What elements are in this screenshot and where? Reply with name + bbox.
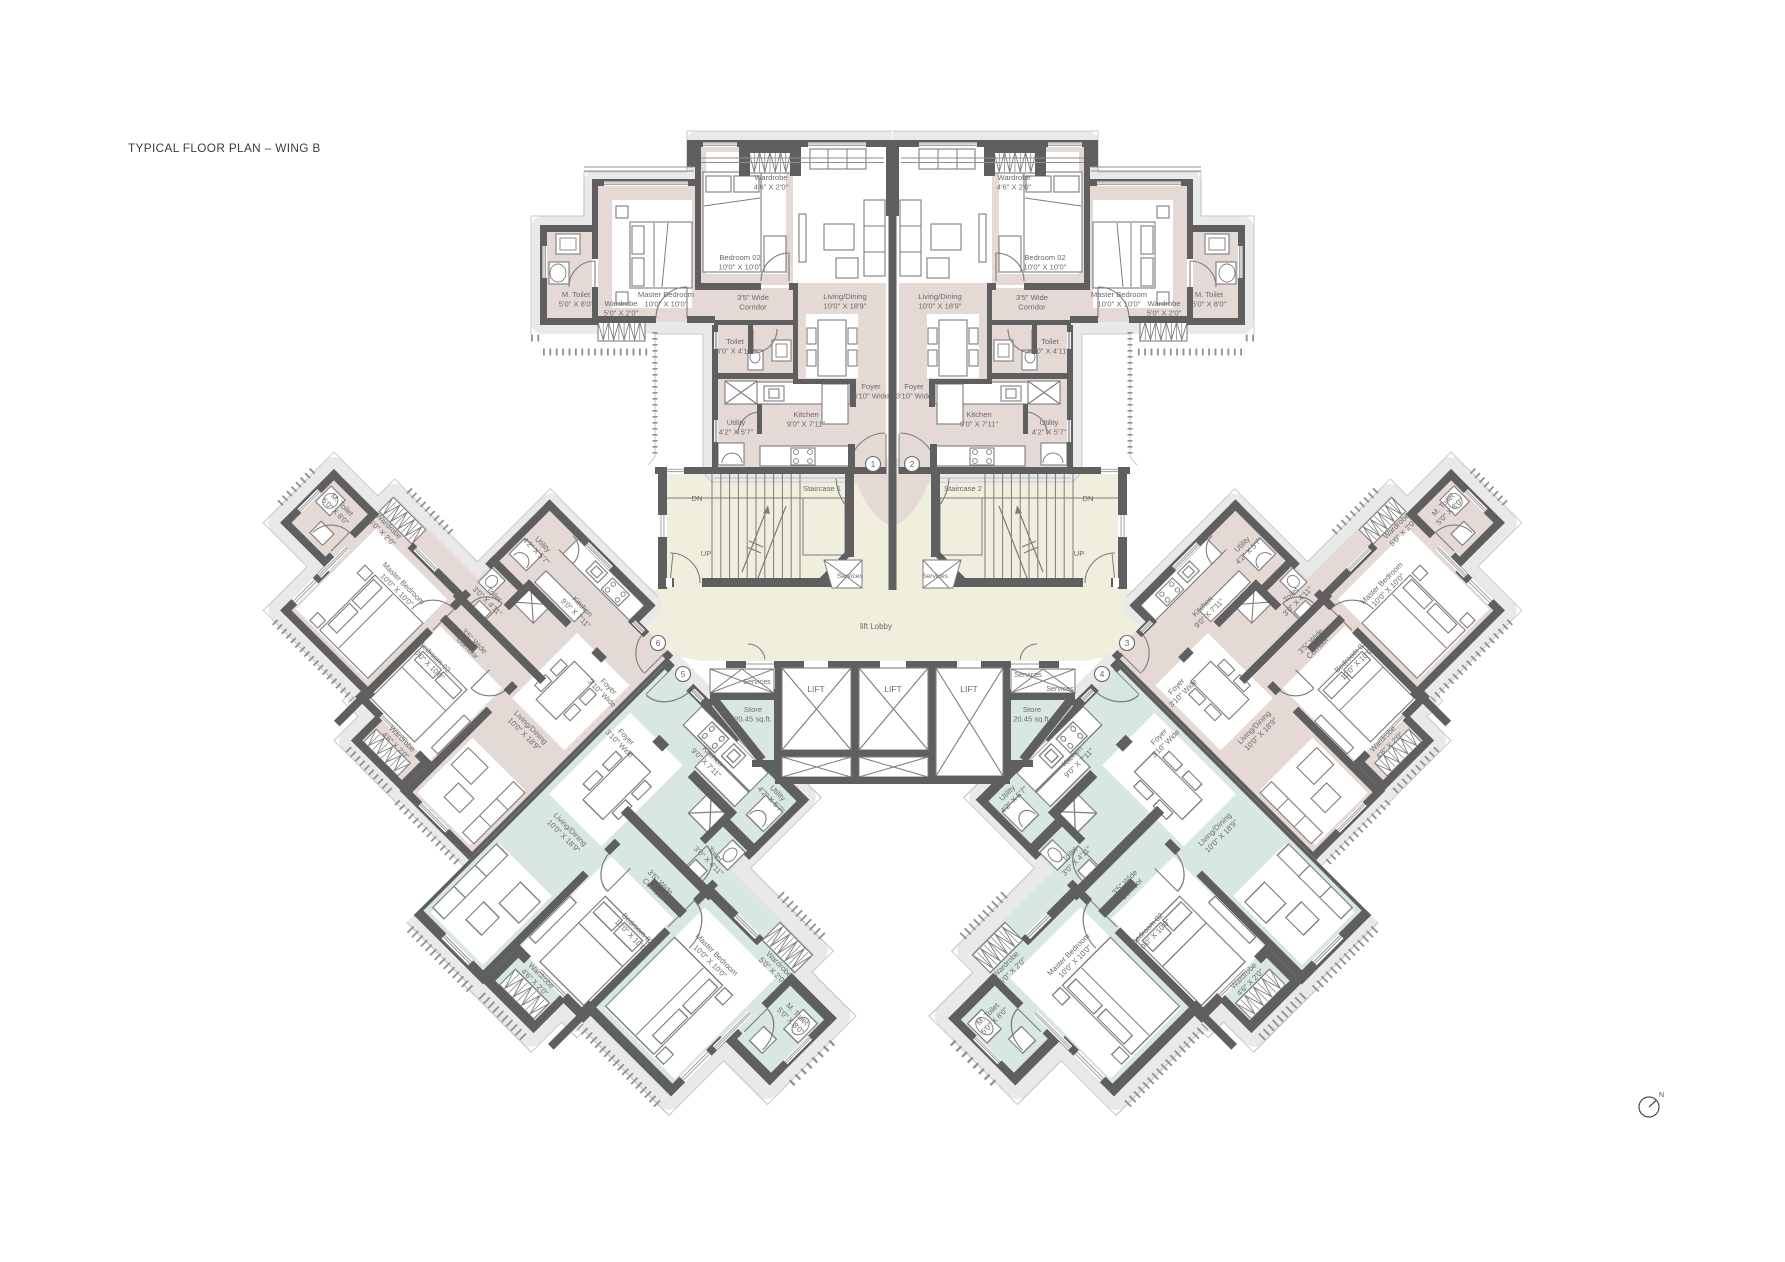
svg-text:10'0" X 18'9": 10'0" X 18'9": [824, 302, 867, 311]
svg-text:5'0" X 2'0": 5'0" X 2'0": [604, 309, 639, 318]
svg-text:Master Bedroom: Master Bedroom: [638, 290, 694, 299]
svg-text:10'0" X 10'0": 10'0" X 10'0": [1024, 263, 1067, 272]
svg-text:3'10" Wide: 3'10" Wide: [853, 392, 889, 401]
svg-text:Corridor: Corridor: [739, 303, 767, 312]
svg-text:5'0" X 8'0": 5'0" X 8'0": [559, 300, 594, 309]
svg-text:Services: Services: [837, 573, 864, 580]
svg-text:Master Bedroom: Master Bedroom: [1091, 290, 1147, 299]
svg-text:Toilet: Toilet: [1041, 337, 1060, 346]
svg-text:3'0" X 4'11": 3'0" X 4'11": [1031, 347, 1069, 356]
svg-text:Living/Dining: Living/Dining: [823, 292, 866, 301]
svg-text:Wardrobe: Wardrobe: [997, 173, 1030, 182]
svg-text:Staircase 1: Staircase 1: [803, 484, 841, 493]
svg-text:Services: Services: [922, 573, 949, 580]
svg-text:DN: DN: [1083, 494, 1094, 503]
svg-text:LIFT: LIFT: [807, 684, 824, 694]
svg-text:Wardrobe: Wardrobe: [1147, 299, 1180, 308]
svg-text:Corridor: Corridor: [1018, 303, 1046, 312]
svg-text:3'10" Wide: 3'10" Wide: [896, 392, 932, 401]
svg-text:Store: Store: [1023, 705, 1041, 714]
svg-text:Foyer: Foyer: [861, 382, 881, 391]
svg-text:UP: UP: [701, 549, 712, 558]
svg-text:Utility: Utility: [727, 418, 746, 427]
svg-text:LIFT: LIFT: [960, 684, 977, 694]
svg-text:Kitchen: Kitchen: [966, 410, 991, 419]
svg-text:5: 5: [681, 669, 686, 679]
svg-text:N: N: [1659, 1092, 1664, 1099]
svg-text:4'6" X 2'0": 4'6" X 2'0": [997, 183, 1032, 192]
svg-text:Staircase 2: Staircase 2: [944, 484, 982, 493]
svg-text:10'0" X 10'0": 10'0" X 10'0": [719, 263, 762, 272]
svg-text:1: 1: [871, 459, 876, 469]
svg-text:10'0" X 18'9": 10'0" X 18'9": [919, 302, 962, 311]
svg-text:Wardrobe: Wardrobe: [604, 299, 637, 308]
svg-text:Kitchen: Kitchen: [793, 410, 818, 419]
svg-text:10'0" X 10'0": 10'0" X 10'0": [645, 300, 688, 309]
svg-text:20.45 sq.ft.: 20.45 sq.ft.: [1013, 715, 1051, 724]
svg-text:6: 6: [656, 638, 661, 648]
svg-text:DN: DN: [692, 494, 703, 503]
svg-text:Services: Services: [1014, 670, 1042, 679]
svg-text:2: 2: [910, 459, 915, 469]
svg-text:20.45 sq.ft.: 20.45 sq.ft.: [734, 715, 772, 724]
svg-text:Wardrobe: Wardrobe: [754, 173, 787, 182]
svg-text:3: 3: [1125, 638, 1130, 648]
svg-text:4: 4: [1100, 669, 1105, 679]
svg-text:TYPICAL FLOOR PLAN – WING B: TYPICAL FLOOR PLAN – WING B: [128, 141, 321, 155]
svg-text:lift Lobby: lift Lobby: [860, 622, 892, 631]
svg-text:Services: Services: [743, 677, 771, 686]
svg-text:M. Toilet: M. Toilet: [1195, 290, 1224, 299]
svg-text:Store: Store: [744, 705, 762, 714]
svg-text:5'0" X 2'0": 5'0" X 2'0": [1147, 309, 1182, 318]
svg-text:Bedroom 02: Bedroom 02: [1024, 253, 1065, 262]
svg-text:M. Toilet: M. Toilet: [562, 290, 591, 299]
svg-text:Utility: Utility: [1040, 418, 1059, 427]
svg-text:4'2" X 5'7": 4'2" X 5'7": [1032, 428, 1067, 437]
svg-text:9'0" X 7'11": 9'0" X 7'11": [787, 420, 825, 429]
svg-text:9'0" X 7'11": 9'0" X 7'11": [960, 420, 998, 429]
svg-text:3'5" Wide: 3'5" Wide: [1016, 293, 1048, 302]
svg-text:4'6" X 2'0": 4'6" X 2'0": [754, 183, 789, 192]
svg-text:Foyer: Foyer: [904, 382, 924, 391]
svg-text:10'0" X 10'0": 10'0" X 10'0": [1098, 300, 1141, 309]
svg-text:UP: UP: [1074, 549, 1085, 558]
svg-text:LIFT: LIFT: [884, 684, 901, 694]
svg-text:3'5" Wide: 3'5" Wide: [737, 293, 769, 302]
svg-text:3'0" X 4'11": 3'0" X 4'11": [716, 347, 754, 356]
svg-text:5'0" X 8'0": 5'0" X 8'0": [1192, 300, 1227, 309]
svg-text:Living/Dining: Living/Dining: [918, 292, 961, 301]
svg-text:Bedroom 02: Bedroom 02: [719, 253, 760, 262]
svg-text:4'2" X 5'7": 4'2" X 5'7": [719, 428, 754, 437]
svg-text:Toilet: Toilet: [726, 337, 745, 346]
svg-text:Services: Services: [1046, 684, 1074, 693]
